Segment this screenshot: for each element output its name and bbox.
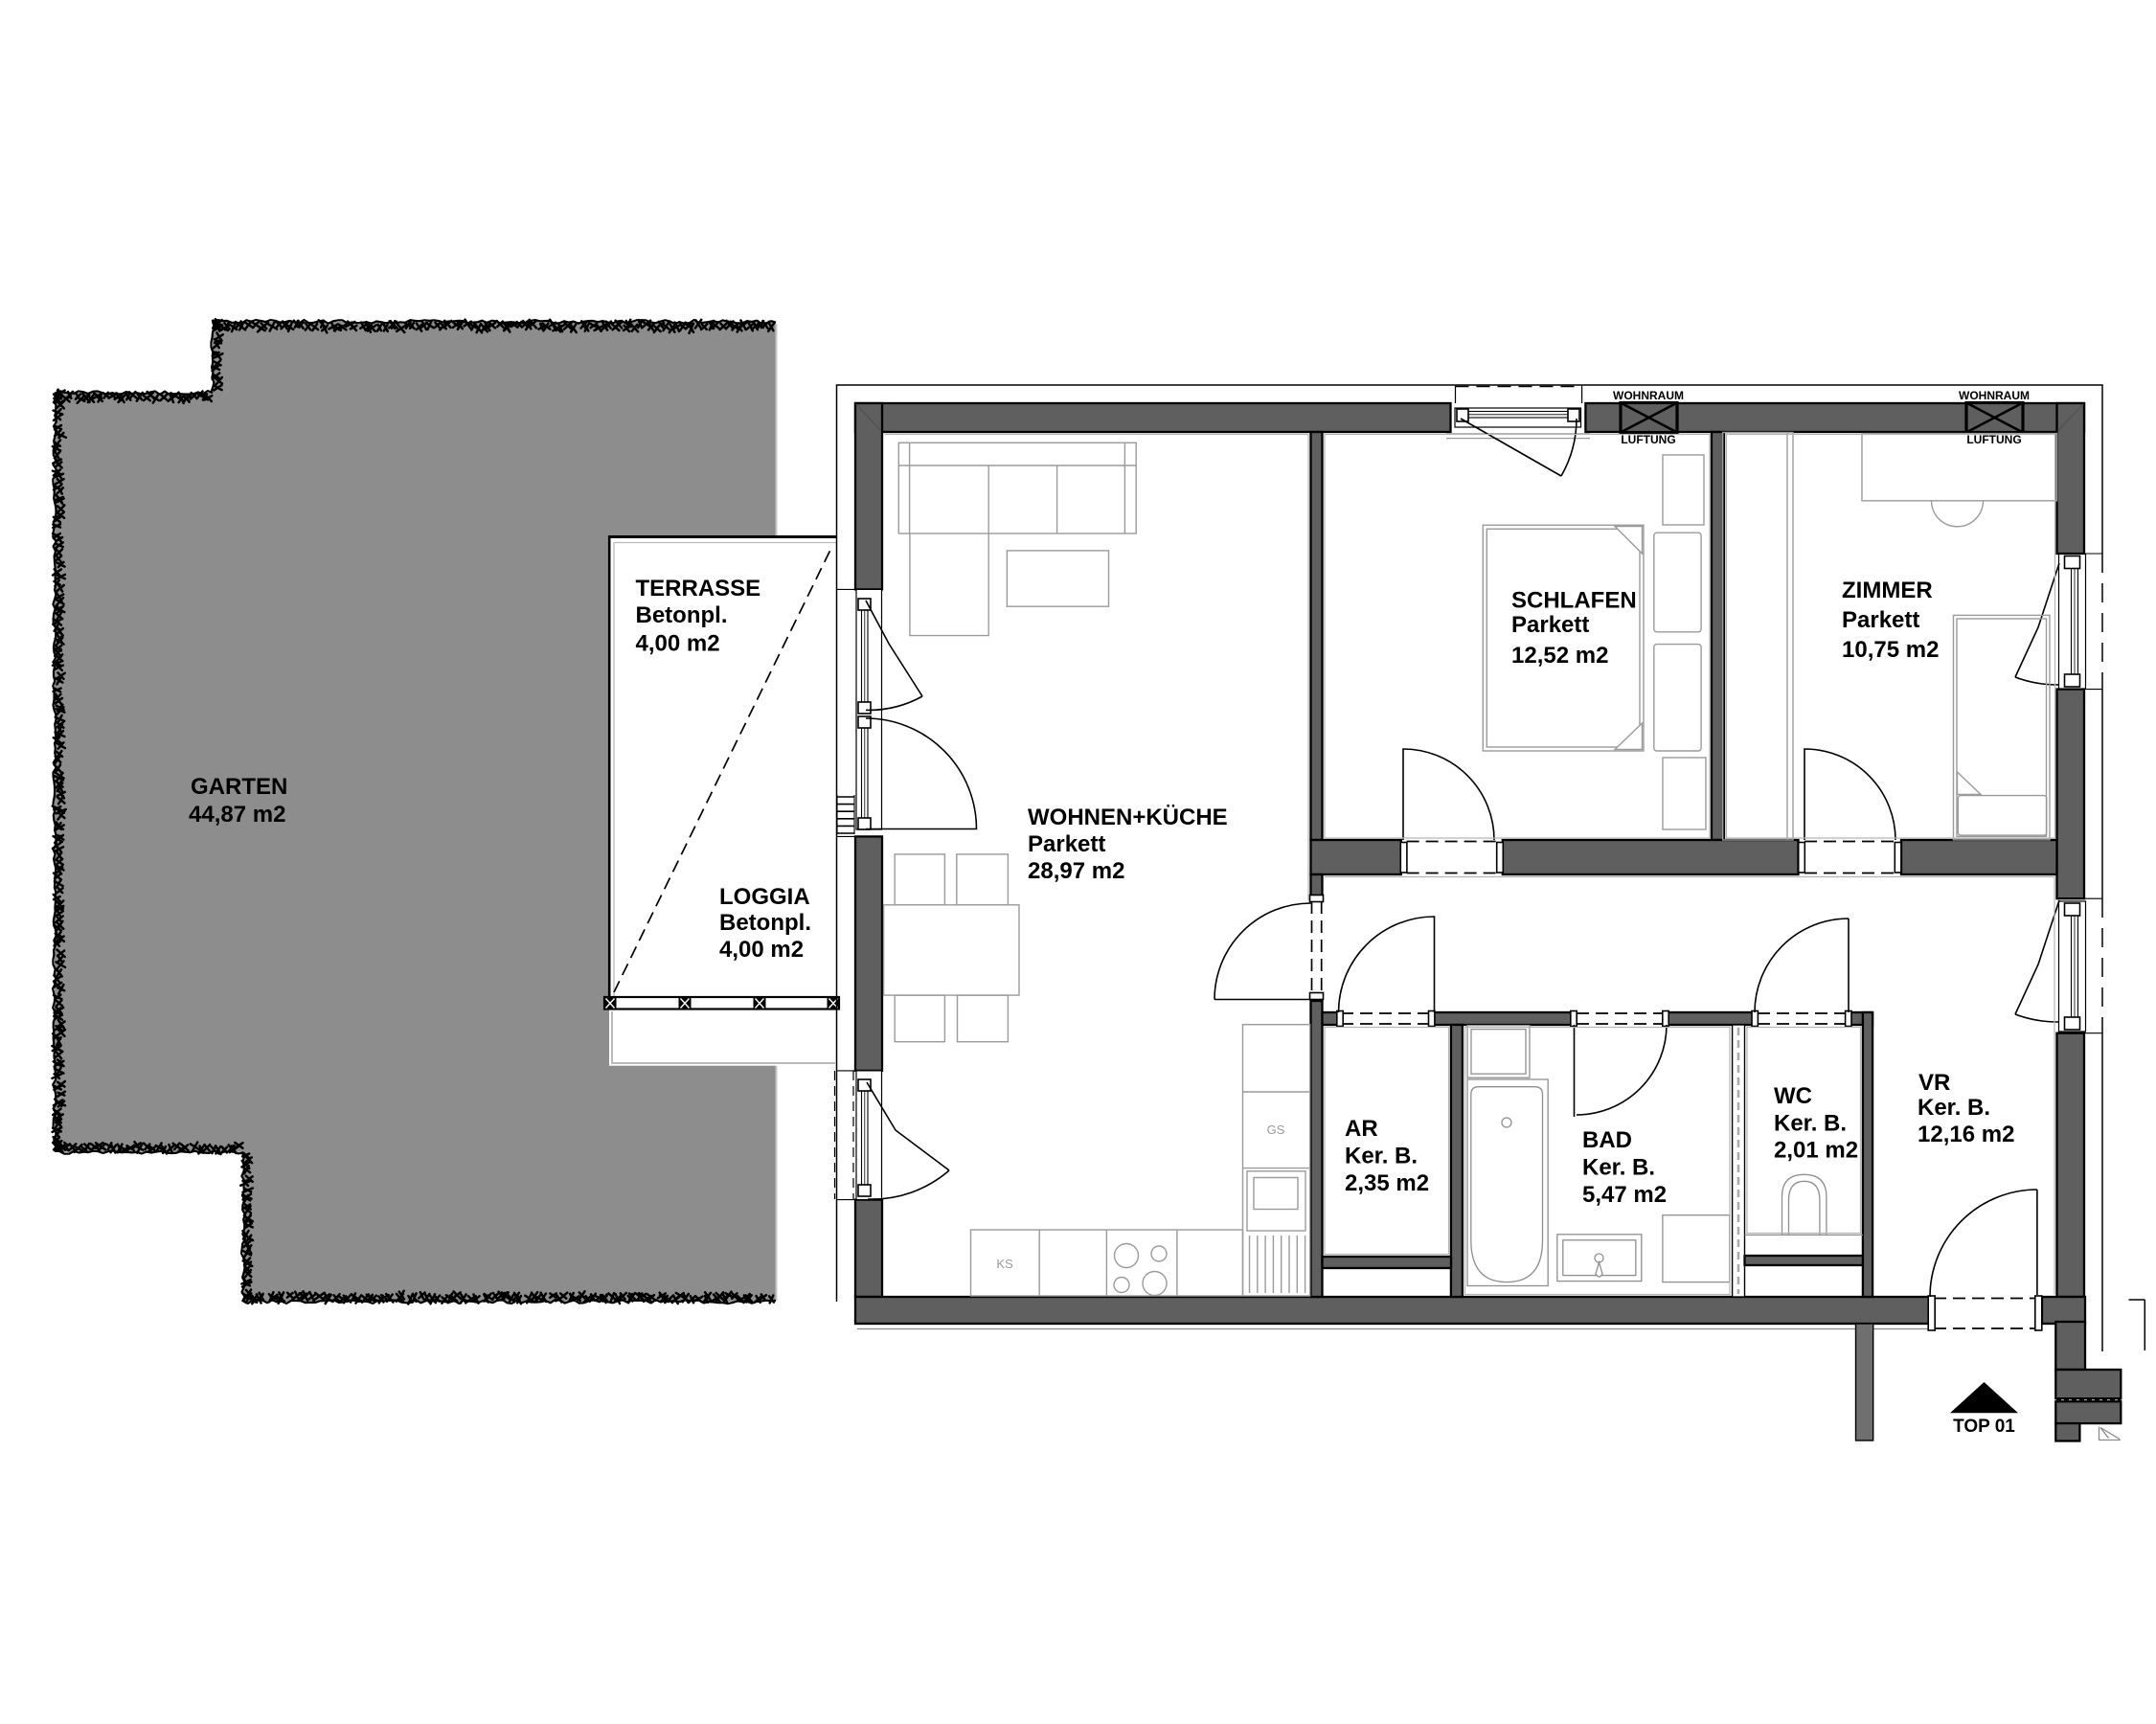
svg-text:28,97 m2: 28,97 m2 bbox=[1028, 858, 1124, 884]
svg-text:ZIMMER: ZIMMER bbox=[1842, 578, 1933, 603]
svg-text:GARTEN: GARTEN bbox=[191, 774, 287, 800]
svg-text:12,16 m2: 12,16 m2 bbox=[1918, 1122, 2014, 1147]
svg-text:TERRASSE: TERRASSE bbox=[636, 576, 761, 601]
svg-text:4,00 m2: 4,00 m2 bbox=[636, 631, 720, 657]
svg-text:VR: VR bbox=[1918, 1070, 1950, 1096]
svg-text:LOGGIA: LOGGIA bbox=[719, 884, 810, 910]
svg-text:Parkett: Parkett bbox=[1028, 831, 1105, 857]
svg-text:10,75 m2: 10,75 m2 bbox=[1842, 637, 1939, 663]
svg-text:AR: AR bbox=[1345, 1116, 1378, 1142]
svg-text:WC: WC bbox=[1774, 1083, 1812, 1109]
svg-text:KS: KS bbox=[996, 1257, 1013, 1271]
svg-text:2,01 m2: 2,01 m2 bbox=[1774, 1138, 1858, 1164]
svg-text:2,35 m2: 2,35 m2 bbox=[1345, 1170, 1429, 1196]
svg-text:WOHNRAUM: WOHNRAUM bbox=[1959, 389, 2030, 402]
svg-text:Ker. B.: Ker. B. bbox=[1774, 1111, 1847, 1137]
svg-text:Parkett: Parkett bbox=[1842, 607, 1919, 633]
svg-text:Betonpl.: Betonpl. bbox=[636, 602, 728, 628]
svg-text:5,47 m2: 5,47 m2 bbox=[1582, 1182, 1667, 1208]
svg-text:BAD: BAD bbox=[1582, 1127, 1632, 1153]
svg-text:WOHNEN+KÜCHE: WOHNEN+KÜCHE bbox=[1028, 805, 1228, 830]
svg-text:WOHNRAUM: WOHNRAUM bbox=[1613, 389, 1684, 402]
svg-text:Ker. B.: Ker. B. bbox=[1582, 1155, 1655, 1181]
svg-text:12,52 m2: 12,52 m2 bbox=[1511, 643, 1608, 669]
svg-text:GS: GS bbox=[1267, 1123, 1285, 1137]
svg-text:SCHLAFEN: SCHLAFEN bbox=[1511, 588, 1637, 614]
svg-text:Parkett: Parkett bbox=[1511, 612, 1589, 638]
svg-text:44,87 m2: 44,87 m2 bbox=[189, 802, 285, 828]
svg-text:Ker. B.: Ker. B. bbox=[1345, 1144, 1418, 1169]
svg-text:4,00 m2: 4,00 m2 bbox=[719, 937, 804, 963]
svg-text:Betonpl.: Betonpl. bbox=[719, 910, 811, 936]
svg-text:Ker. B.: Ker. B. bbox=[1918, 1095, 1990, 1121]
svg-text:TOP 01: TOP 01 bbox=[1953, 1417, 2015, 1437]
